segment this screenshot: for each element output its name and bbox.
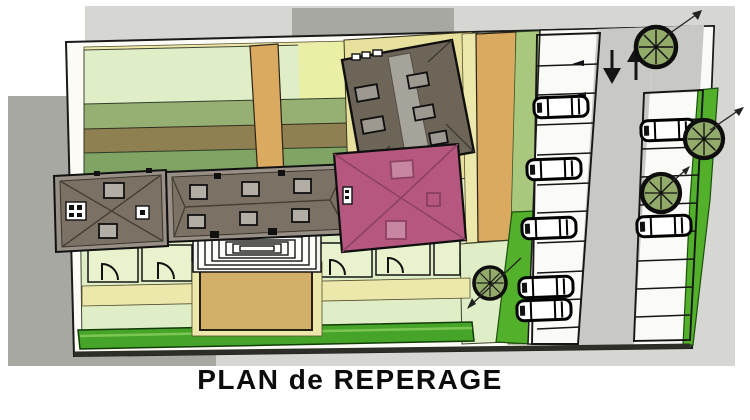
- skylight: [242, 182, 259, 196]
- plan-figure: PLAN de REPERAGE: [0, 0, 750, 420]
- roof-chimney: [386, 221, 406, 239]
- skylight: [188, 215, 205, 228]
- skylight: [190, 185, 207, 199]
- garden-plot: [434, 239, 460, 275]
- car-icon: [637, 215, 692, 237]
- skylight: [407, 72, 429, 88]
- car-icon: [534, 96, 589, 118]
- skylight: [240, 212, 257, 225]
- skylight: [294, 179, 311, 193]
- tree-icon: [474, 267, 506, 299]
- skylight: [99, 224, 117, 238]
- skylight: [429, 131, 448, 146]
- car-icon: [519, 276, 574, 298]
- site-plan-svg: [0, 0, 750, 420]
- car-icon: [527, 158, 582, 180]
- building-left-pavilion-roof: [54, 168, 168, 252]
- courtyard: [200, 270, 312, 330]
- garden-plot: [142, 245, 192, 281]
- building-central-long-roof: [166, 164, 352, 242]
- tan-access-road: [476, 32, 516, 242]
- car-icon: [517, 299, 572, 321]
- skylight: [361, 116, 385, 134]
- central-courtyard: [192, 262, 322, 336]
- skylight: [292, 209, 309, 222]
- facade-label: [343, 187, 352, 204]
- skylight: [413, 104, 435, 120]
- building-pink-highlighted: [334, 144, 466, 252]
- car-icon: [522, 217, 577, 239]
- skylight: [104, 183, 124, 198]
- garden-plot: [88, 246, 138, 282]
- skylight: [355, 84, 379, 102]
- plan-title: PLAN de REPERAGE: [140, 364, 560, 396]
- roof-chimney: [390, 160, 413, 178]
- roof-vent-grid: [66, 202, 86, 220]
